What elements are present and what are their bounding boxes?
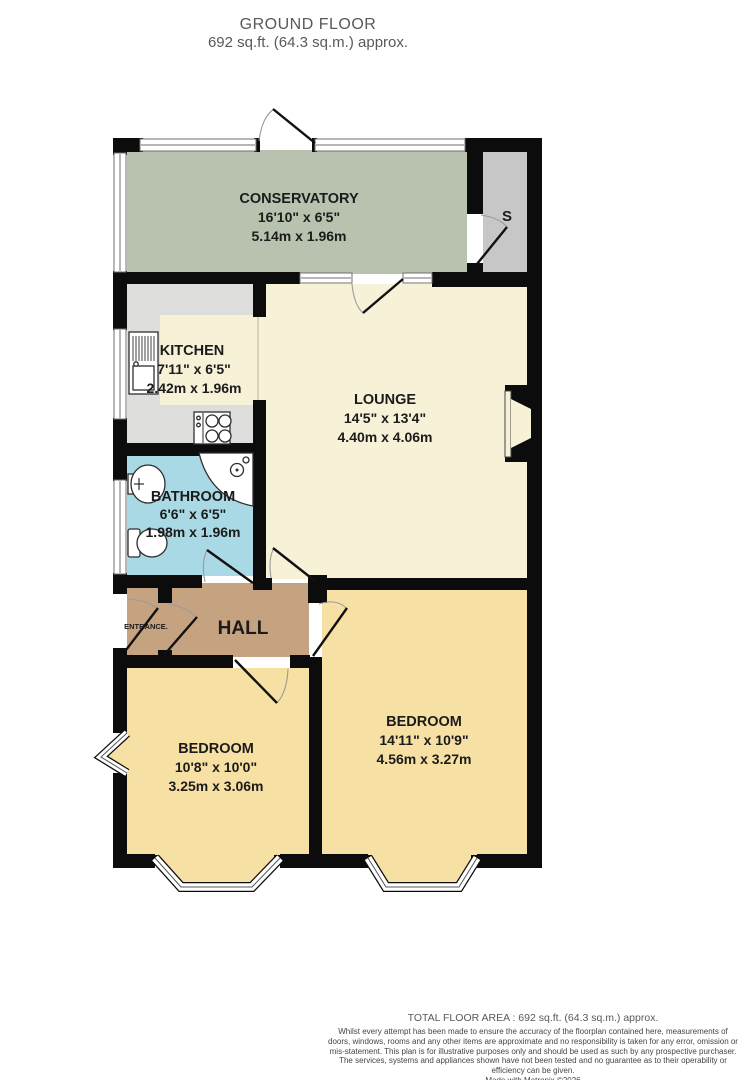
lounge-dims-metric: 4.40m x 4.06m (338, 429, 433, 445)
floorplan-drawing: CONSERVATORY 16'10" x 6'5" 5.14m x 1.96m… (0, 0, 741, 1080)
storage-label: S (502, 208, 512, 225)
lounge-dims-imperial: 14'5" x 13'4" (344, 410, 426, 426)
bedroom-right-label: BEDROOM (386, 714, 462, 730)
bathroom-dims-metric: 1.98m x 1.96m (146, 524, 241, 540)
window-lounge-conservatory-1 (300, 273, 352, 283)
conservatory-dims-metric: 5.14m x 1.96m (252, 228, 347, 244)
bathroom-dims-imperial: 6'6" x 6'5" (160, 506, 227, 522)
window-conservatory-left (114, 153, 126, 272)
kitchen-label: KITCHEN (160, 343, 224, 359)
window-top-left (140, 139, 256, 151)
disclaimer-text: Whilst every attempt has been made to en… (327, 1027, 739, 1076)
bedroom-right-dims-imperial: 14'11" x 10'9" (379, 732, 468, 748)
bedroom-left-dims-metric: 3.25m x 3.06m (169, 778, 264, 794)
window-bathroom-left (114, 480, 126, 574)
hall-label: HALL (218, 618, 269, 639)
bedroom-left-label: BEDROOM (178, 741, 254, 757)
entrance-label: ENTRANCE. (124, 622, 168, 631)
window-top-right (315, 139, 465, 151)
conservatory-label: CONSERVATORY (239, 191, 359, 207)
total-floor-area: TOTAL FLOOR AREA : 692 sq.ft. (64.3 sq.m… (327, 1012, 739, 1024)
door-conservatory-entrance (259, 109, 315, 143)
bedroom-left-dims-imperial: 10'8" x 10'0" (175, 759, 257, 775)
kitchen-dims-imperial: 7'11" x 6'5" (157, 361, 231, 377)
bathroom-label: BATHROOM (151, 489, 235, 505)
bedroom-right-dims-metric: 4.56m x 3.27m (377, 751, 472, 767)
lounge-label: LOUNGE (354, 392, 416, 408)
window-lounge-conservatory-2 (403, 273, 432, 283)
conservatory-dims-imperial: 16'10" x 6'5" (258, 209, 340, 225)
kitchen-dims-metric: 2.42m x 1.96m (147, 380, 242, 396)
kitchen-stove (194, 412, 231, 444)
window-kitchen-left (114, 329, 126, 419)
metropix-credit: Made with Metropix ©2026 (327, 1076, 739, 1080)
floorplan-page: GROUND FLOOR 692 sq.ft. (64.3 sq.m.) app… (0, 0, 741, 1080)
chimney-breast (505, 385, 542, 462)
plan-footer: TOTAL FLOOR AREA : 692 sq.ft. (64.3 sq.m… (327, 1012, 739, 1080)
